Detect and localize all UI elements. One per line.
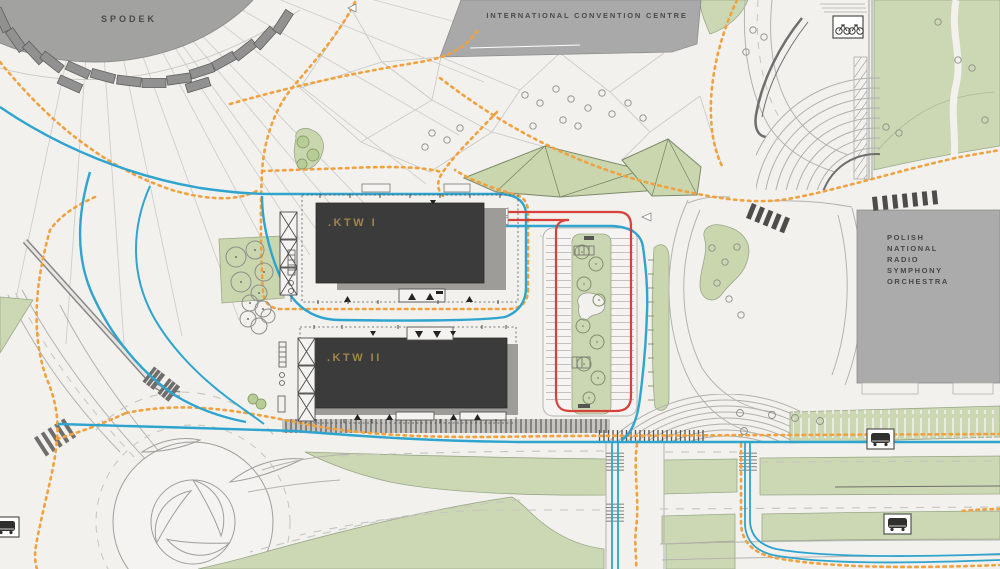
parking-median (572, 234, 611, 414)
icc-label: INTERNATIONAL CONVENTION CENTRE (486, 11, 687, 20)
sidewalk-band (282, 419, 610, 433)
ladder-crossing-3 (739, 452, 757, 472)
bus-stop-icon-left (0, 517, 19, 537)
bus-stop-icon-right-1 (867, 429, 894, 449)
pnrso-label-2: NATIONAL (887, 244, 938, 253)
stairs-hatch (854, 57, 867, 179)
green-mid-b2 (762, 511, 1000, 541)
ladder-crossing-2 (606, 503, 624, 523)
pnrso-label-4: SYMPHONY (887, 266, 943, 275)
green-bottom-c (666, 542, 735, 569)
median-a2 (664, 459, 737, 494)
green-mid-b1 (662, 514, 735, 544)
bus-stop-icon-right-2 (884, 514, 911, 534)
bicycle-parking-icon (833, 16, 863, 38)
pnrso-label-3: RADIO (887, 255, 919, 264)
ladder-crossing-1 (606, 452, 624, 472)
green-strip-parking (652, 245, 669, 411)
pnrso-building: POLISH NATIONAL RADIO SYMPHONY ORCHESTRA (857, 190, 1000, 394)
ktw1-label: .KTW I (328, 217, 377, 229)
spodek-label: SPODEK (101, 14, 157, 24)
pnrso-label-5: ORCHESTRA (887, 277, 949, 286)
pnrso-label-1: POLISH (887, 233, 925, 242)
ktw2-building (315, 338, 507, 408)
icc-building: INTERNATIONAL CONVENTION CENTRE (440, 0, 701, 57)
ktw2-label: .KTW II (327, 352, 382, 364)
ktw1-building (316, 203, 484, 283)
site-plan-map: SPODEK INTERNATIONAL CONVENTION CENTRE P… (0, 0, 1000, 569)
